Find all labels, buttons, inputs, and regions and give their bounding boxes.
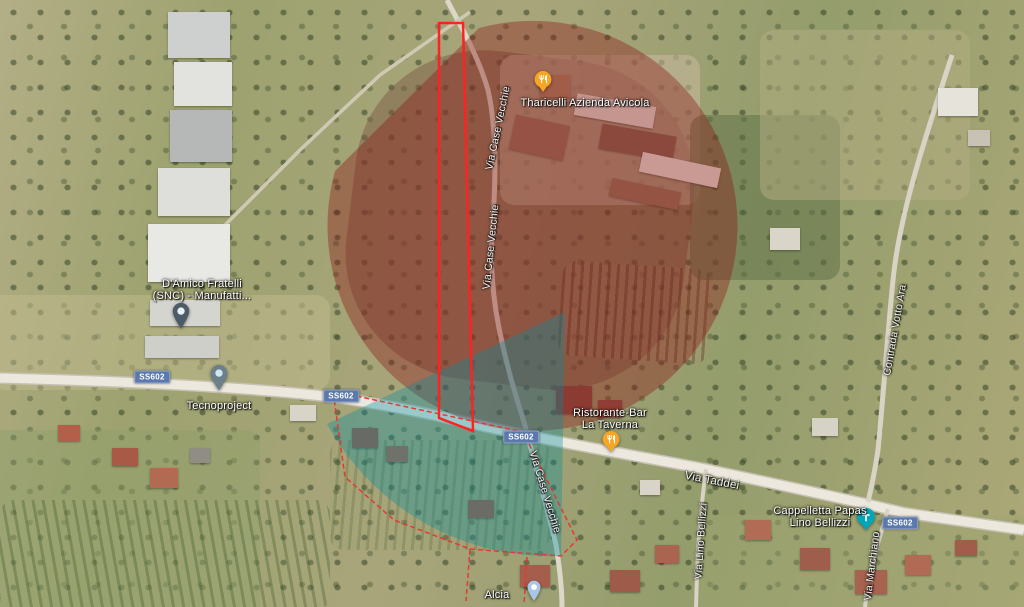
poi-label-alcia[interactable]: Alcia [485,589,510,601]
poi-label-line: Cappelletta Papas [773,505,866,517]
shield-text: SS602 [139,373,165,382]
poi-label-line: La Taverna [573,419,647,431]
poi-marker-restaurant[interactable] [603,431,620,452]
poi-label-faricelli[interactable]: Tharicelli Azienda Avicola [520,97,649,109]
shield-text: SS602 [508,433,534,442]
poi-label-tecnoproject[interactable]: Tecnoproject [187,400,252,412]
poi-label-line: Ristorante-Bar [573,407,647,419]
poi-label-line: D'Amico Fratelli [153,278,252,290]
parcel-outline [439,23,473,431]
poi-pin-business[interactable] [209,364,229,392]
road-shield-ss602: SS602 [134,371,170,384]
shield-text: SS602 [887,519,913,528]
poi-pin-place[interactable] [526,580,542,602]
poi-label-cappelletta[interactable]: Cappelletta Papas Lino Bellizzi [773,505,866,529]
poi-label-line: (SNC) - Manufatti... [153,290,252,302]
poi-label-line: Lino Bellizzi [773,517,866,529]
poi-label-damico[interactable]: D'Amico Fratelli (SNC) - Manufatti... [153,278,252,302]
poi-pin-business[interactable] [171,302,191,330]
shield-text: SS602 [328,392,354,401]
poi-label-taverna[interactable]: Ristorante-Bar La Taverna [573,407,647,431]
road-shield-ss602: SS602 [882,517,918,530]
satellite-map-canvas[interactable]: Tharicelli Azienda Avicola D'Amico Frate… [0,0,1024,607]
road-shield-ss602: SS602 [503,431,539,444]
road-shield-ss602: SS602 [323,390,359,403]
poi-marker-restaurant[interactable] [535,71,552,92]
